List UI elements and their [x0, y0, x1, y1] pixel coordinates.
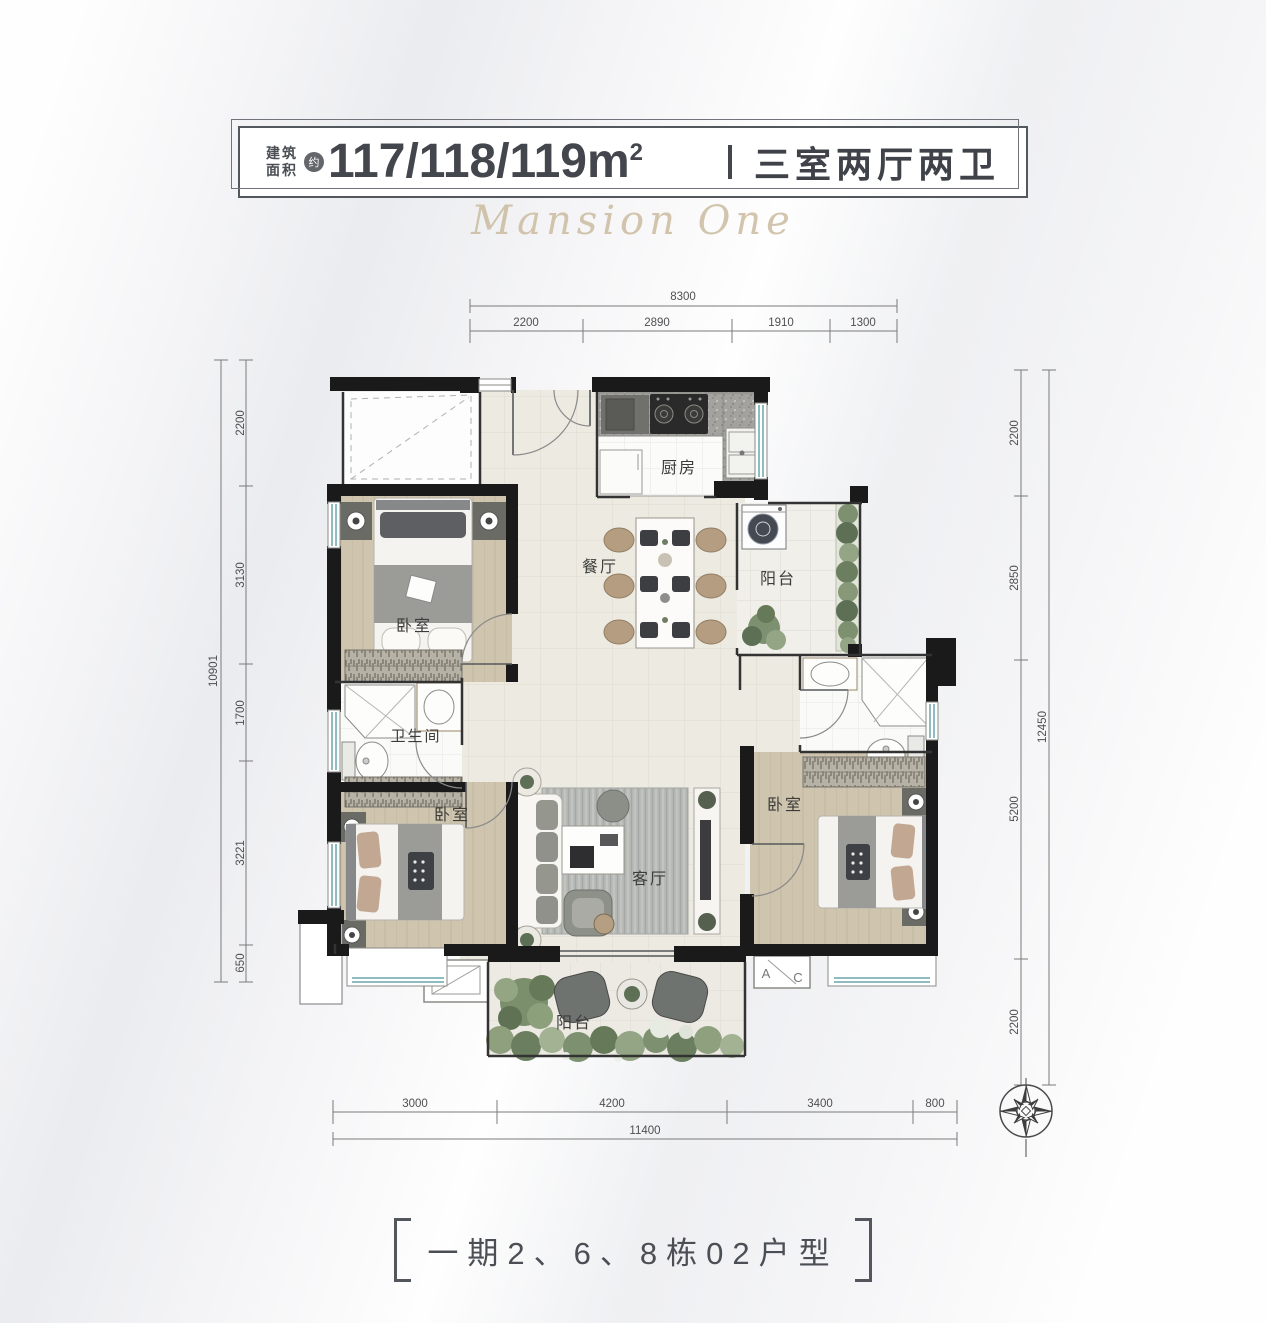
- area-label-line1: 建筑: [266, 145, 298, 162]
- dining-table: [604, 518, 726, 648]
- floorplan: A C: [0, 0, 1266, 1323]
- footer: 一期2、6、8栋02户型: [0, 1218, 1266, 1282]
- dim-right-seg: 2200: [1009, 1009, 1021, 1035]
- dim-left-total: 10901: [208, 655, 220, 687]
- label-bedroom-nw: 卧室: [396, 617, 432, 635]
- footer-text: 一期2、6、8栋02户型: [427, 1228, 838, 1273]
- dim-right-seg: 5200: [1009, 796, 1021, 822]
- approx-badge: 约: [304, 152, 324, 172]
- dim-bottom-seg: 3400: [807, 1098, 833, 1110]
- area-number: 117/118/119m: [328, 135, 630, 188]
- dim-bottom-seg: 800: [925, 1098, 944, 1110]
- bay-window-left: [347, 948, 447, 986]
- ac-letter-c: C: [793, 970, 802, 985]
- area-label: 建筑 面积: [266, 145, 298, 179]
- wardrobe-nw: [345, 650, 462, 682]
- dim-top-seg: 2200: [513, 317, 539, 329]
- planter-strip: [836, 503, 860, 653]
- dim-top-seg: 2890: [644, 317, 670, 329]
- label-bedroom-east: 卧室: [767, 796, 803, 814]
- ac-platform-right: A C: [754, 956, 810, 988]
- ac-letter-a: A: [762, 966, 771, 981]
- area-label-line2: 面积: [266, 162, 298, 179]
- layout-type: 三室两厅两卫: [754, 136, 1000, 188]
- dim-top-total: 8300: [670, 291, 696, 303]
- dim-bottom-seg: 4200: [599, 1098, 625, 1110]
- label-balcony-north: 阳台: [760, 570, 796, 588]
- dim-left-seg: 1700: [235, 700, 247, 726]
- bracket-left: [394, 1218, 411, 1282]
- label-bedroom-sw: 卧室: [434, 806, 470, 824]
- dim-left-seg: 3130: [235, 562, 247, 588]
- label-kitchen: 厨房: [661, 459, 697, 477]
- washer: [742, 505, 786, 549]
- dim-right-seg: 2200: [1009, 420, 1021, 446]
- label-bathroom: 卫生间: [390, 728, 441, 745]
- layout-type-group: 三室两厅两卫: [728, 136, 1000, 188]
- dim-bottom-total: 11400: [629, 1125, 660, 1137]
- area-sup: 2: [630, 139, 643, 166]
- dim-top-seg: 1910: [768, 317, 794, 329]
- compass-icon: [1000, 1078, 1052, 1157]
- header-box: 建筑 面积 约 117/118/119m2 三室两厅两卫: [238, 126, 1028, 198]
- header-divider: [728, 145, 732, 179]
- dim-top-seg: 1300: [850, 317, 876, 329]
- area-group: 建筑 面积 约 117/118/119m2: [266, 138, 643, 186]
- label-dining: 餐厅: [582, 558, 618, 576]
- dim-right-seg: 2850: [1009, 565, 1021, 591]
- label-living: 客厅: [632, 870, 668, 888]
- dim-bottom-seg: 3000: [402, 1098, 428, 1110]
- label-balcony-south: 阳台: [556, 1014, 592, 1032]
- bracket-right: [855, 1218, 872, 1282]
- area-value: 117/118/119m2: [328, 138, 643, 186]
- wardrobe-east: [803, 757, 925, 787]
- living-furniture: [510, 768, 720, 954]
- dim-right-total: 12450: [1037, 711, 1049, 743]
- dim-left-seg: 650: [235, 953, 247, 972]
- dim-left-seg: 3221: [235, 840, 247, 866]
- dim-left-seg: 2200: [235, 410, 247, 436]
